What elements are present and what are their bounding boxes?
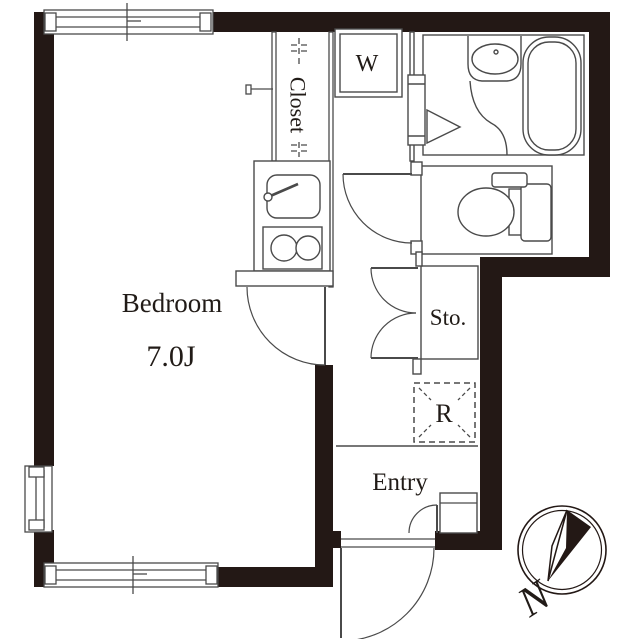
bathroom: [408, 32, 584, 161]
kitchen-sink-icon: [267, 175, 320, 218]
refrigerator-label: R: [435, 399, 453, 428]
closet-label: Closet: [286, 77, 311, 133]
window-top: [44, 3, 213, 41]
window-bottom: [44, 556, 218, 594]
storage-label: Sto.: [430, 305, 466, 330]
storage-double-doors: [371, 268, 418, 358]
toilet-room: [411, 162, 552, 254]
entry-label: Entry: [372, 469, 428, 496]
vanity-sink-icon: [468, 36, 521, 81]
floor-plan: Closet W: [0, 0, 640, 639]
washing-machine-label: W: [356, 51, 379, 77]
bathtub-icon: [523, 37, 581, 155]
floor-plan-drawing: Closet W: [0, 0, 640, 639]
window-left: [25, 466, 52, 532]
entry-inner-door: [409, 505, 437, 533]
corridor-door: [343, 174, 412, 243]
stove-icon: [263, 227, 322, 269]
shoe-cabinet: [440, 493, 477, 533]
bedroom-label: Bedroom: [122, 288, 223, 318]
bedroom-size-label: 7.0J: [146, 340, 196, 373]
kitchen-unit: [236, 161, 333, 286]
compass-needle-outline: [548, 510, 567, 581]
compass-north-label: N: [509, 571, 560, 626]
bedroom-door: [247, 287, 325, 365]
kitchen-base: [236, 271, 333, 286]
entry-door: [341, 539, 435, 639]
